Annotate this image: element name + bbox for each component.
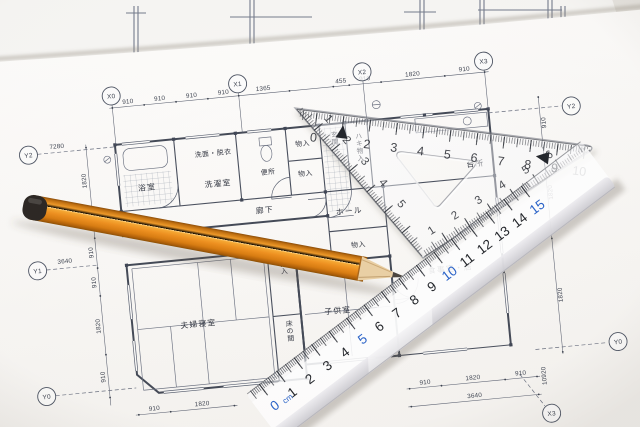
- dim-label: 1365: [256, 85, 272, 93]
- dim-label: 1820: [465, 374, 481, 382]
- dim-label: 910: [154, 95, 166, 103]
- dim-label: 910: [149, 405, 161, 413]
- grid-label: Y0: [614, 339, 623, 347]
- dim-label: 1820: [557, 287, 565, 303]
- dim-label: 3640: [57, 257, 73, 265]
- dim-label: 910: [419, 379, 431, 387]
- dim-label: 455: [335, 77, 347, 85]
- room-label-bath: 浴室: [138, 181, 157, 193]
- dim-label: 3640: [467, 392, 483, 400]
- dim-label: 910: [515, 369, 527, 377]
- dim-label: 910: [90, 276, 98, 288]
- dim-label: 910: [100, 371, 108, 383]
- grid-label: Y0: [42, 394, 51, 402]
- grid-label: Y2: [567, 103, 576, 111]
- grid-label: X3: [547, 410, 556, 418]
- dim-label: 910: [458, 65, 470, 73]
- photo-architectural-blueprint: 910 910 910 910 1365 455 910 1820 910 72…: [0, 0, 640, 427]
- dim-label: 910: [122, 98, 134, 106]
- grid-label: Y2: [24, 152, 33, 160]
- dim-label: 1820: [405, 70, 421, 78]
- grid-label: X2: [358, 69, 367, 77]
- room-label-corridor: 廊下: [255, 204, 274, 216]
- dim-label: 910: [88, 246, 96, 258]
- dim-label: 1820: [94, 318, 102, 334]
- dim-label: 910: [186, 92, 198, 100]
- blueprint-scene: 910 910 910 910 1365 455 910 1820 910 72…: [0, 0, 640, 427]
- dim-label: 1820: [80, 173, 88, 189]
- dim-label: 7280: [49, 143, 65, 151]
- dim-label: 910: [540, 116, 548, 128]
- grid-label: X0: [107, 93, 116, 101]
- grid-label: X1: [233, 81, 242, 89]
- grid-label: X3: [479, 58, 488, 66]
- grid-label: Y1: [33, 268, 42, 276]
- dim-label: 910: [218, 89, 230, 97]
- dim-label: 1820: [194, 400, 210, 408]
